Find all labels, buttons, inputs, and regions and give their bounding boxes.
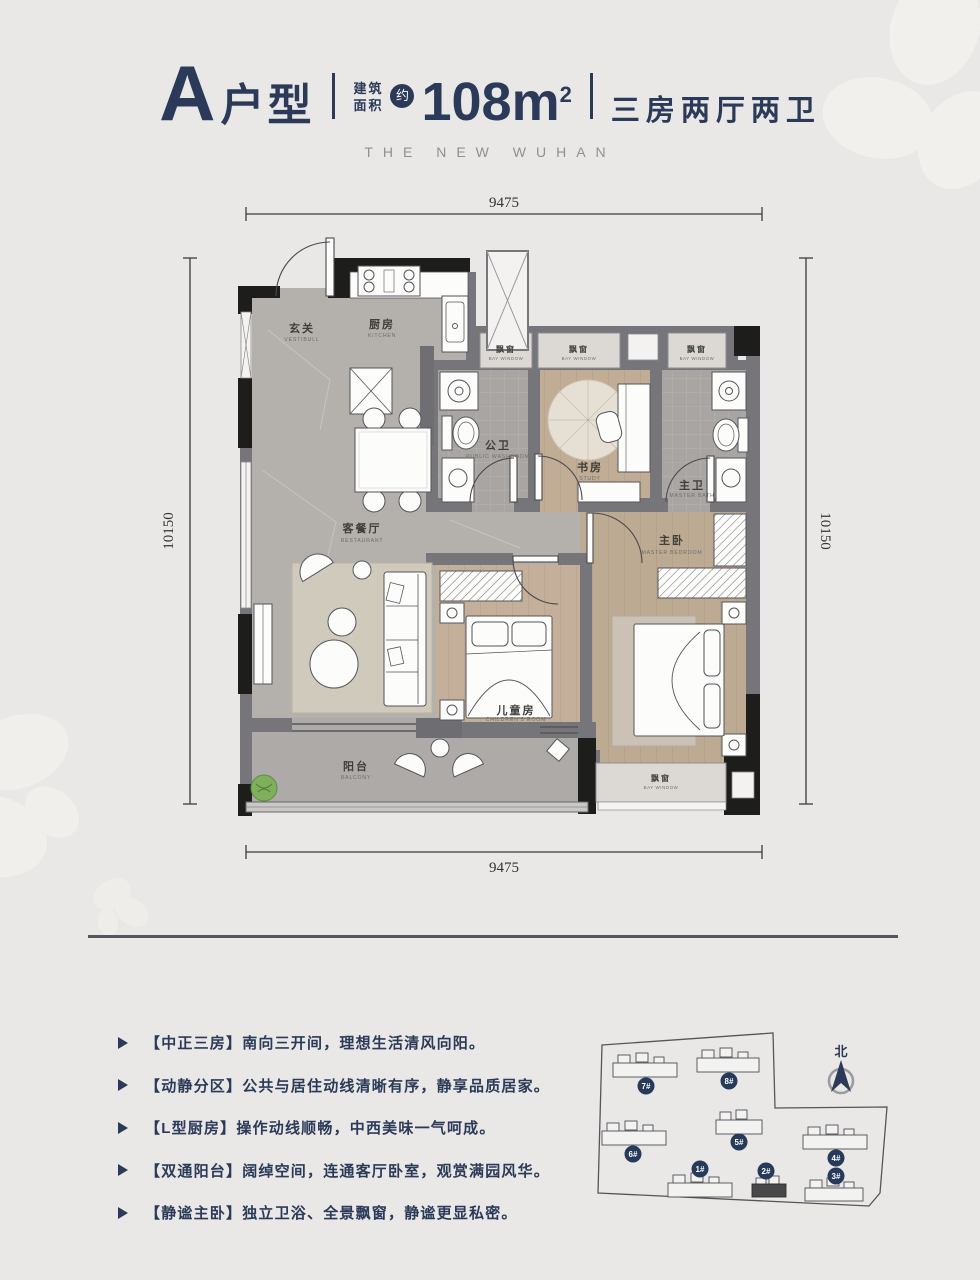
pillow <box>704 630 720 676</box>
building-2-highlighted <box>752 1176 786 1197</box>
badge-label: 3# <box>832 1172 841 1181</box>
washer-icon <box>440 372 478 410</box>
svg-text:BAY WINDOW: BAY WINDOW <box>562 356 597 361</box>
subtitle: THE NEW WUHAN <box>0 144 980 160</box>
room-label-vestibule: 玄关 <box>289 321 315 335</box>
room-label-master-bedroom: 主卧 <box>659 533 685 547</box>
area-prefix-line1: 建筑 <box>353 81 383 97</box>
feature-item: 【L型厨房】操作动线顺畅，中西美味一气呵成。 <box>118 1114 598 1141</box>
bay-window-label: 飘窗 <box>651 773 671 783</box>
vanity <box>442 458 474 502</box>
room-label-kitchen: 厨房 <box>369 317 395 331</box>
badge-label: 8# <box>725 1077 734 1086</box>
building-5 <box>716 1110 762 1134</box>
svg-text:BAY WINDOW: BAY WINDOW <box>680 356 715 361</box>
nightstand <box>440 603 464 623</box>
site-plan: 北 7# 8# 6# 5# 4# 1# 2# 3# <box>580 1020 980 1270</box>
feature-item: 【动静分区】公共与居住动线清晰有序，静享品质居家。 <box>118 1072 598 1099</box>
side-table <box>353 561 371 579</box>
badge-label: 7# <box>642 1082 651 1091</box>
entry-door-arc <box>276 242 330 296</box>
room-label-master-bath: 主卫 <box>679 478 705 492</box>
nightstand <box>722 602 746 624</box>
bullet-triangle-icon <box>118 1079 128 1091</box>
svg-text:CHILDREN'S ROOM: CHILDREN'S ROOM <box>486 717 547 723</box>
bullet-triangle-icon <box>118 1037 128 1049</box>
bay-window-label: 飘窗 <box>496 344 516 354</box>
feature-text: 【L型厨房】操作动线顺畅，中西美味一气呵成。 <box>145 1117 496 1138</box>
building-4 <box>803 1125 867 1149</box>
feature-item: 【双通阳台】阔绰空间，连通客厅卧室，观赏满园风华。 <box>118 1157 598 1184</box>
room-label-children-room: 儿童房 <box>496 703 536 717</box>
building-7 <box>613 1053 677 1077</box>
page-header: A 户型 建筑 面积 约 108m2 三房两厅两卫 THE NEW WUHAN <box>0 58 980 160</box>
pouf <box>328 608 356 636</box>
study-door-leaf <box>535 454 542 500</box>
shower-icon <box>712 372 746 410</box>
svg-text:STUDY: STUDY <box>579 476 601 482</box>
pillow <box>704 684 720 728</box>
approx-badge: 约 <box>390 84 414 108</box>
north-label: 北 <box>834 1044 847 1059</box>
dining-chair <box>399 408 421 430</box>
washroom-door-leaf <box>510 456 517 502</box>
area-prefix: 建筑 面积 <box>353 81 383 114</box>
feature-text: 【动静分区】公共与居住动线清晰有序，静享品质居家。 <box>145 1075 550 1096</box>
feature-text: 【静谧主卧】独立卫浴、全景飘窗，静谧更显私密。 <box>145 1202 518 1223</box>
bullet-triangle-icon <box>118 1122 128 1134</box>
svg-text:PUBLIC WASHROOM: PUBLIC WASHROOM <box>466 454 530 460</box>
building-8 <box>697 1048 759 1072</box>
svg-text:MASTER BEDROOM: MASTER BEDROOM <box>641 550 702 556</box>
dining-table <box>355 428 431 492</box>
title-divider <box>332 73 335 119</box>
bay-window-label: 飘窗 <box>687 344 707 354</box>
feature-text: 【双通阳台】阔绰空间，连通客厅卧室，观赏满园风华。 <box>145 1160 550 1181</box>
pillow <box>512 622 546 646</box>
svg-text:RESTAURANT: RESTAURANT <box>341 538 384 544</box>
svg-text:MASTER BATH: MASTER BATH <box>669 493 714 499</box>
feature-item: 【中正三房】南向三开间，理想生活清风向阳。 <box>118 1029 598 1056</box>
unit-suffix: 户型 <box>220 69 314 133</box>
badge-label: 4# <box>832 1154 841 1163</box>
master-bath-fixtures <box>712 372 748 502</box>
nightstand <box>722 734 746 756</box>
svg-text:BAY WINDOW: BAY WINDOW <box>644 785 679 790</box>
badge-label: 6# <box>629 1150 638 1159</box>
area-value: 108m2 <box>421 71 571 133</box>
dim-left: 10150 <box>161 512 177 550</box>
pouf <box>310 640 358 688</box>
study-bench <box>578 482 640 502</box>
svg-text:VESTIBULL: VESTIBULL <box>284 337 319 343</box>
entry-door-leaf <box>326 238 334 296</box>
feature-list: 【中正三房】南向三开间，理想生活清风向阳。 【动静分区】公共与居住动线清晰有序，… <box>118 1029 598 1242</box>
title-row: A 户型 建筑 面积 约 108m2 三房两厅两卫 <box>0 58 980 133</box>
elevator-shaft <box>487 251 528 350</box>
layout-text: 三房两厅两卫 <box>611 87 821 129</box>
dining-chair <box>399 490 421 512</box>
bullet-triangle-icon <box>118 1164 128 1176</box>
unit-letter: A <box>159 58 216 128</box>
room-label-study: 书房 <box>577 460 603 474</box>
title-divider <box>590 73 593 119</box>
dining-chair <box>363 408 385 430</box>
floor-plan: 玄关 VESTIBULL 厨房 KITCHEN 公卫 PUBLIC WASHRO… <box>0 185 980 885</box>
balcony-table <box>431 739 449 757</box>
dim-top: 9475 <box>489 195 519 211</box>
building-6 <box>602 1121 666 1145</box>
room-label-living-dining: 客餐厅 <box>342 521 382 535</box>
toilet-tank <box>442 416 452 450</box>
desk <box>618 384 650 472</box>
svg-text:BALCONY: BALCONY <box>341 775 371 781</box>
section-divider <box>88 935 898 938</box>
public-washroom-fixtures <box>440 372 479 502</box>
nightstand <box>440 700 464 720</box>
bay-window-label: 飘窗 <box>569 344 589 354</box>
room-label-public-washroom: 公卫 <box>485 439 511 452</box>
north-compass: 北 <box>829 1044 853 1093</box>
bullet-triangle-icon <box>118 1207 128 1219</box>
north-arrow-icon <box>831 1060 851 1092</box>
area-number: 108m <box>421 72 559 132</box>
area-prefix-line2: 面积 <box>353 98 383 114</box>
dim-bottom: 9475 <box>489 860 519 876</box>
svg-text:KITCHEN: KITCHEN <box>368 333 396 339</box>
master-door-leaf <box>587 513 593 563</box>
site-buildings <box>602 1048 867 1201</box>
badge-label: 5# <box>735 1138 744 1147</box>
feature-text: 【中正三房】南向三开间，理想生活清风向阳。 <box>145 1032 485 1053</box>
dining-chair <box>363 490 385 512</box>
room-label-balcony: 阳台 <box>343 759 369 773</box>
pillow <box>472 622 508 646</box>
children-door-leaf <box>513 556 558 562</box>
vanity <box>716 458 746 502</box>
badge-label: 2# <box>762 1167 771 1176</box>
svg-text:BAY WINDOW: BAY WINDOW <box>489 356 524 361</box>
dim-right: 10150 <box>817 512 833 550</box>
feature-item: 【静谧主卧】独立卫浴、全景飘窗，静谧更显私密。 <box>118 1199 598 1226</box>
badge-label: 1# <box>696 1165 705 1174</box>
area-superscript: 2 <box>560 82 572 107</box>
